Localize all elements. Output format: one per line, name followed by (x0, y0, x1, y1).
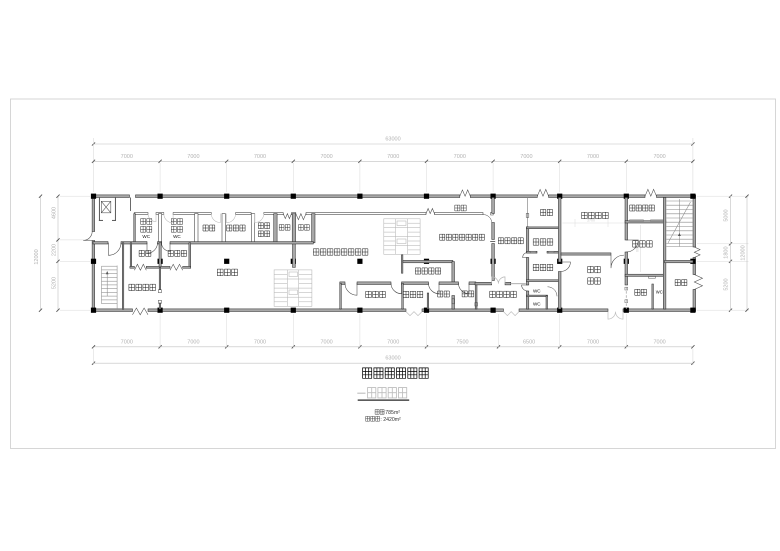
svg-text:3700: 3700 (587, 219, 595, 223)
svg-text:2200: 2200 (52, 244, 58, 256)
svg-text:63000: 63000 (385, 356, 400, 362)
svg-text:7000: 7000 (387, 154, 399, 160)
svg-text:: 2420m²: : 2420m² (380, 417, 401, 423)
svg-text:7000: 7000 (187, 340, 199, 346)
svg-text:WC: WC (142, 234, 150, 239)
svg-text:7000: 7000 (187, 154, 199, 160)
svg-text:7000: 7000 (653, 154, 665, 160)
svg-text:7000: 7000 (320, 340, 332, 346)
svg-text:7000: 7000 (121, 154, 133, 160)
svg-text:7000: 7000 (454, 154, 466, 160)
svg-text:5200: 5200 (724, 278, 730, 290)
svg-text:7000: 7000 (387, 340, 399, 346)
svg-text:5000: 5000 (724, 209, 730, 221)
svg-text:7000: 7000 (520, 154, 532, 160)
svg-text:WC: WC (656, 290, 663, 295)
svg-text:7000: 7000 (653, 340, 665, 346)
svg-text:WC: WC (533, 302, 541, 307)
svg-text:7500: 7500 (456, 340, 468, 346)
svg-text:12000: 12000 (34, 249, 40, 264)
svg-text:7000: 7000 (254, 340, 266, 346)
svg-text:6500: 6500 (523, 340, 535, 346)
svg-text:WC: WC (173, 234, 181, 239)
svg-text:4600: 4600 (52, 207, 58, 219)
svg-text:12000: 12000 (741, 245, 747, 260)
svg-text:7000: 7000 (587, 340, 599, 346)
svg-text:WC: WC (533, 288, 541, 293)
svg-text:7000: 7000 (587, 154, 599, 160)
svg-text:1800: 1800 (724, 246, 730, 258)
svg-text:63000: 63000 (385, 137, 400, 143)
svg-text:7000: 7000 (121, 340, 133, 346)
svg-text:5200: 5200 (52, 277, 58, 289)
svg-text:7000: 7000 (320, 154, 332, 160)
svg-text:: 785m²: : 785m² (382, 410, 400, 416)
svg-text:7000: 7000 (254, 154, 266, 160)
